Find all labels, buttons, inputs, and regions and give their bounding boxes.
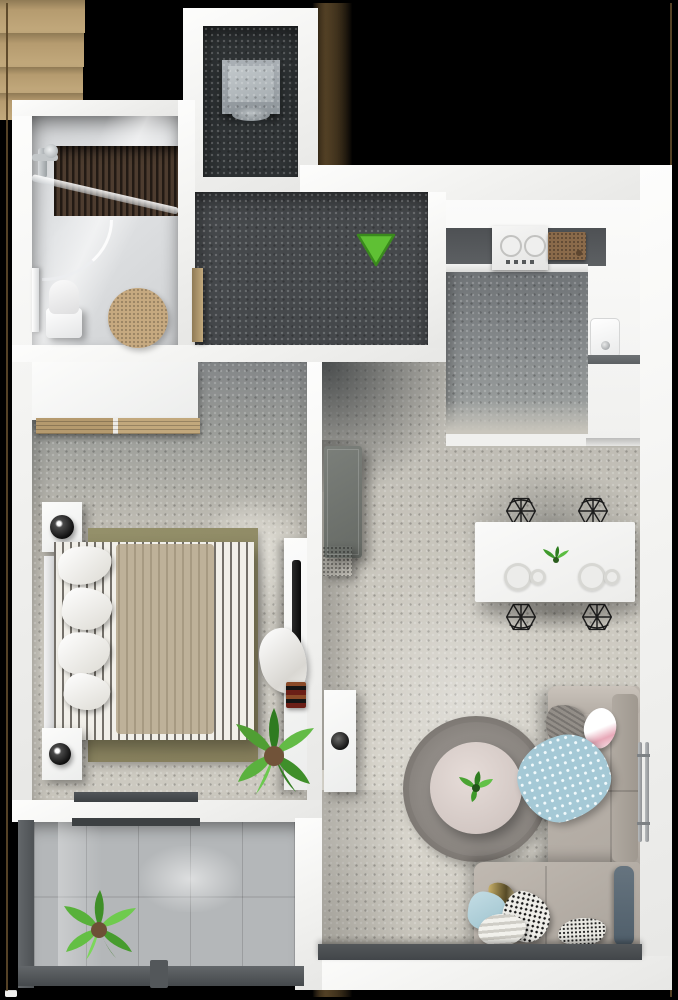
kitchen-sink [590, 318, 620, 358]
wall-bathroom-top [12, 100, 183, 116]
tv-cabinet [324, 446, 362, 558]
wall-radiator [637, 742, 651, 842]
bathroom-door-edge [192, 268, 203, 342]
coffee-table [430, 742, 522, 834]
entrance-arrow-icon [358, 235, 394, 265]
table-plant-icon [542, 546, 570, 568]
wardrobe-wood-shelf [36, 418, 200, 434]
plate-large [504, 563, 532, 591]
round-bath-mat [108, 288, 168, 348]
coffee-table-plant-icon [457, 770, 495, 804]
wall-right [640, 165, 672, 990]
balcony-door-threshold [72, 818, 200, 826]
balcony-sliding-door [74, 792, 198, 802]
floor-plan-scene [0, 0, 678, 1000]
burner-icon [524, 235, 546, 257]
plate-small [530, 569, 546, 585]
washing-machine-drum [232, 108, 270, 121]
potted-palm-icon [230, 694, 318, 802]
cutting-board [548, 232, 586, 260]
slate-cushion [614, 866, 634, 946]
entrance-arrow-marker [355, 232, 397, 268]
towel-rail [32, 268, 39, 332]
bed-tan-throw [116, 544, 214, 734]
decor-bowl-icon [331, 732, 349, 750]
burner-icon [500, 235, 522, 257]
shower-glass-arc [42, 220, 113, 281]
lamp-lower [49, 743, 71, 765]
washing-machine-lid [228, 66, 274, 102]
washing-machine [222, 60, 280, 114]
sink-faucet-icon [601, 341, 610, 350]
plate-large [578, 563, 606, 591]
balcony-plant-icon [56, 884, 142, 968]
toilet [46, 280, 82, 338]
wardrobe [32, 362, 198, 420]
white-sideboard [324, 690, 356, 792]
wall-mid-band [12, 345, 446, 362]
dining-chair [500, 600, 542, 634]
hallway [195, 192, 428, 345]
lamp-upper [50, 515, 74, 539]
balcony-railing-post [150, 960, 168, 988]
panoramic-window-sill [318, 944, 642, 960]
wall-bottom [295, 956, 672, 990]
wall-left [12, 100, 32, 818]
kitchen-floor [446, 268, 588, 434]
balcony-railing-left [18, 820, 34, 988]
bathroom [32, 116, 178, 345]
cooktop [492, 226, 548, 270]
dishwasher-strip [588, 355, 640, 364]
media-box [322, 546, 352, 576]
sofa-back-cushion [612, 694, 638, 862]
cooktop-knobs [506, 260, 536, 264]
cabinet-end-shadow [586, 438, 640, 448]
wall-balcony-corner [295, 818, 322, 990]
storage-room [203, 26, 298, 177]
plate-small [604, 569, 620, 585]
dining-table [475, 522, 635, 602]
wall-hall-kitchen-stub [428, 192, 446, 348]
dining-chair [576, 600, 618, 634]
